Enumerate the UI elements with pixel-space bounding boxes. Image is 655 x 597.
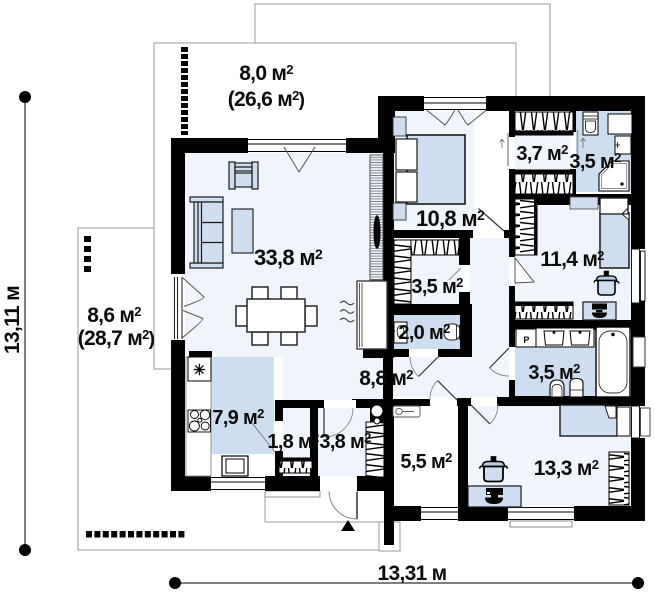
svg-text:3,5 м2: 3,5 м2: [528, 361, 580, 384]
svg-text:8,6 м2: 8,6 м2: [87, 304, 141, 327]
svg-text:1,8 м2: 1,8 м2: [267, 430, 319, 453]
svg-text:11,4 м2: 11,4 м2: [540, 248, 604, 271]
svg-text:13,31 м: 13,31 м: [377, 562, 446, 585]
svg-text:3,5 м2: 3,5 м2: [569, 150, 621, 173]
svg-text:2,0 м2: 2,0 м2: [398, 321, 450, 344]
svg-text:3,5 м2: 3,5 м2: [411, 275, 463, 298]
svg-text:8,0 м2: 8,0 м2: [239, 62, 293, 85]
svg-text:10,8 м2: 10,8 м2: [416, 206, 485, 231]
svg-text:3,8 м2: 3,8 м2: [319, 430, 371, 453]
svg-text:7,9 м2: 7,9 м2: [212, 406, 264, 429]
svg-text:✳: ✳: [193, 362, 206, 379]
svg-text:5,5 м2: 5,5 м2: [400, 450, 452, 473]
svg-text:3,7 м2: 3,7 м2: [516, 142, 568, 165]
svg-text:13,3 м2: 13,3 м2: [534, 457, 599, 480]
svg-text:8,8 м2: 8,8 м2: [359, 367, 413, 390]
svg-text:13,11 м: 13,11 м: [1, 286, 24, 354]
svg-text:33,8 м2: 33,8 м2: [254, 245, 323, 270]
svg-text:P: P: [523, 335, 529, 345]
